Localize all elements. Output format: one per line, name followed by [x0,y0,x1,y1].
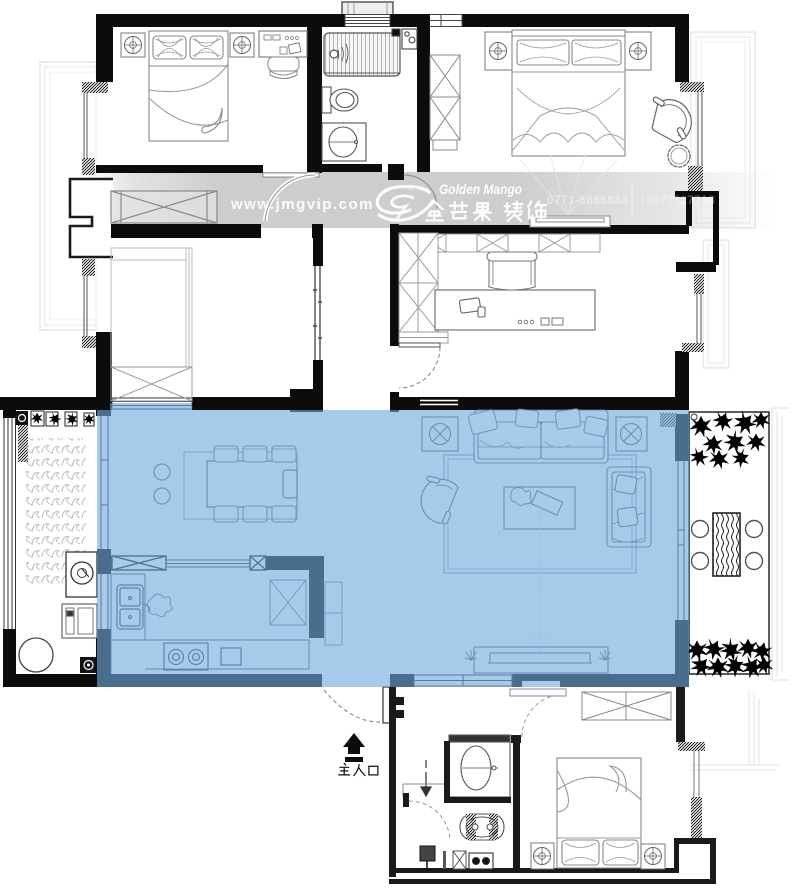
svg-text:0771-6866883: 0771-6866883 [547,195,628,207]
svg-text:Golden Mango: Golden Mango [439,181,522,197]
svg-text:www.jmgvip.com: www.jmgvip.com [230,196,374,213]
svg-text:18977117718: 18977117718 [639,195,715,207]
